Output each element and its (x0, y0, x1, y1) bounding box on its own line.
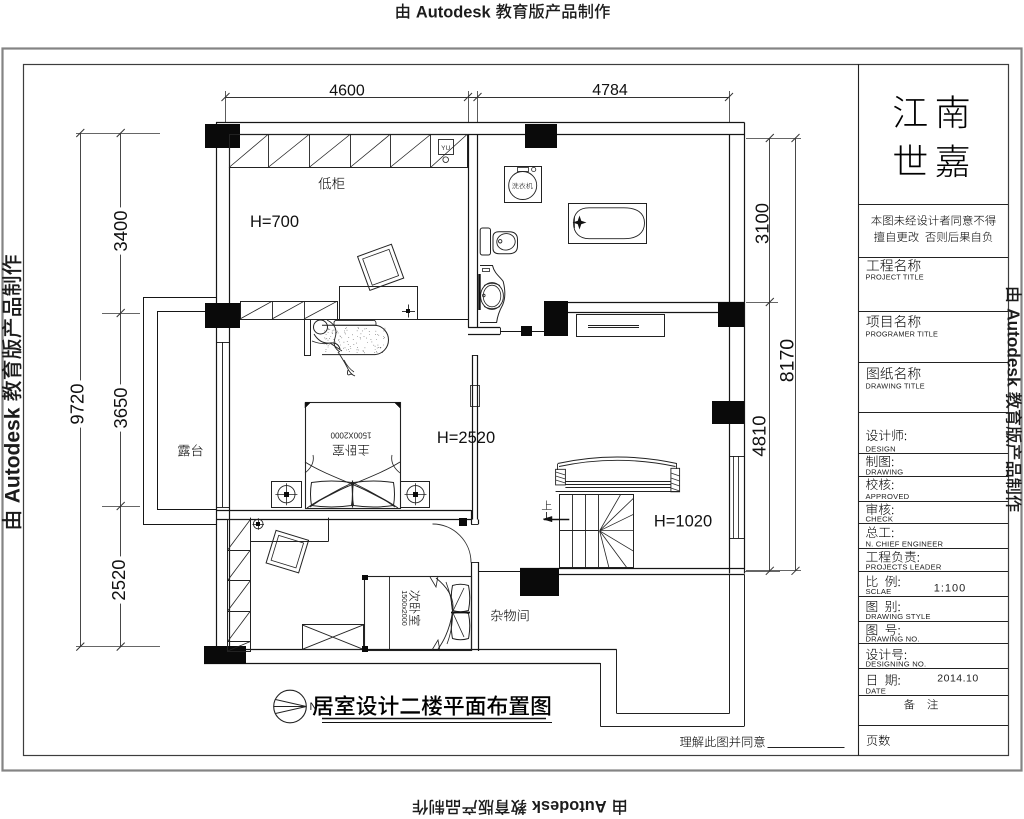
svg-text:H=1020: H=1020 (654, 513, 712, 531)
svg-text:SCLAE: SCLAE (866, 587, 892, 596)
svg-text:DATE: DATE (866, 687, 887, 696)
svg-text:Autodesk: Autodesk (2, 407, 25, 503)
svg-text:1500x2000: 1500x2000 (400, 590, 409, 626)
svg-text:DRAWING: DRAWING (866, 468, 904, 477)
svg-text:Autodesk: Autodesk (416, 3, 492, 21)
svg-text:9720: 9720 (66, 383, 87, 424)
svg-text:PROJECT TITLE: PROJECT TITLE (866, 273, 924, 282)
svg-text:PROGRAMER TITLE: PROGRAMER TITLE (866, 330, 939, 339)
svg-text:3100: 3100 (751, 203, 772, 244)
svg-text:DRAWING STYLE: DRAWING STYLE (866, 612, 931, 621)
svg-text:N. CHIEF ENGINEER: N. CHIEF ENGINEER (866, 540, 944, 549)
svg-text:H=700: H=700 (250, 213, 299, 231)
svg-text:8170: 8170 (777, 339, 799, 383)
svg-text:DESIGN: DESIGN (866, 445, 896, 454)
svg-text:H=2520: H=2520 (437, 429, 495, 447)
svg-text:PROJECTS LEADER: PROJECTS LEADER (866, 563, 942, 572)
svg-text:DRAWING TITLE: DRAWING TITLE (866, 382, 925, 391)
svg-text:DRAWING NO.: DRAWING NO. (866, 635, 920, 644)
svg-text:4600: 4600 (329, 83, 365, 100)
svg-text:YU: YU (441, 145, 450, 152)
svg-text:4810: 4810 (748, 415, 769, 456)
svg-text:APPROVED: APPROVED (866, 492, 910, 501)
svg-text:2014.10: 2014.10 (937, 673, 978, 685)
svg-text:1:100: 1:100 (934, 583, 967, 595)
svg-text:2520: 2520 (108, 559, 129, 600)
svg-text:3400: 3400 (110, 210, 131, 251)
svg-text:4784: 4784 (592, 82, 628, 99)
svg-text:DESIGNING NO.: DESIGNING NO. (866, 660, 927, 669)
svg-text:3650: 3650 (110, 387, 131, 428)
svg-text:Autodesk: Autodesk (1003, 308, 1023, 387)
svg-text:Autodesk: Autodesk (531, 797, 607, 815)
svg-text:1500X2000: 1500X2000 (330, 431, 371, 440)
svg-text:CHECK: CHECK (866, 515, 894, 524)
